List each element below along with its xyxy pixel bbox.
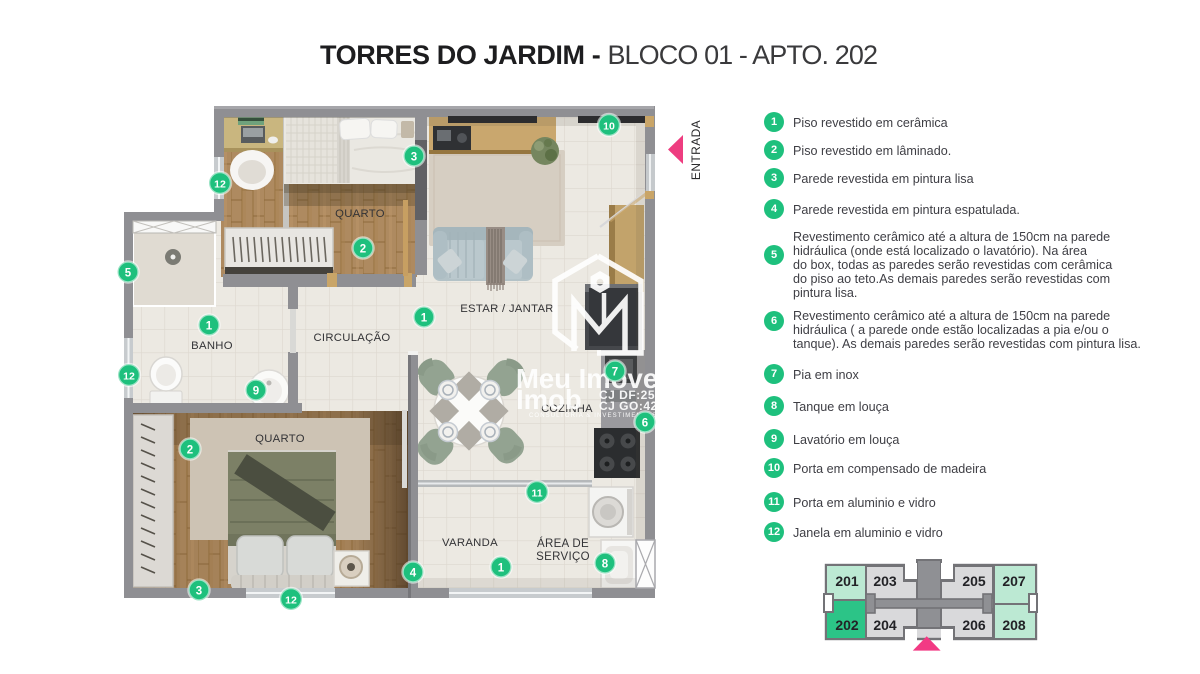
svg-text:9: 9: [253, 386, 259, 398]
svg-text:BANHO: BANHO: [191, 340, 233, 352]
svg-text:203: 203: [873, 573, 897, 589]
svg-text:Imob: Imob: [516, 384, 582, 415]
svg-text:3: 3: [196, 586, 202, 598]
svg-text:8: 8: [602, 559, 609, 571]
svg-text:3: 3: [411, 152, 417, 164]
svg-text:VARANDA: VARANDA: [442, 537, 498, 549]
svg-text:208: 208: [1002, 617, 1026, 633]
svg-text:ESTAR / JANTAR: ESTAR / JANTAR: [460, 303, 554, 315]
svg-text:CONSULTORIA & INVESTIMENTOS IM: CONSULTORIA & INVESTIMENTOS IMOBILIARIOS: [529, 413, 714, 419]
svg-text:204: 204: [873, 617, 897, 633]
svg-text:10: 10: [603, 121, 615, 133]
svg-text:4: 4: [410, 568, 417, 580]
svg-text:ENTRADA: ENTRADA: [689, 120, 703, 180]
svg-text:2: 2: [187, 445, 193, 457]
svg-text:QUARTO: QUARTO: [255, 433, 305, 445]
svg-text:1: 1: [421, 313, 428, 325]
svg-text:5: 5: [125, 268, 132, 280]
svg-text:12: 12: [285, 595, 297, 607]
svg-text:6: 6: [642, 418, 648, 430]
svg-text:CIRCULAÇÃO: CIRCULAÇÃO: [313, 331, 390, 344]
svg-text:11: 11: [531, 488, 542, 500]
svg-text:CJ GO:423: CJ GO:423: [599, 399, 665, 413]
svg-text:QUARTO: QUARTO: [335, 208, 385, 220]
svg-text:12: 12: [123, 371, 135, 383]
svg-text:12: 12: [214, 179, 226, 191]
svg-text:2: 2: [360, 244, 366, 256]
svg-text:SERVIÇO: SERVIÇO: [536, 551, 590, 563]
svg-text:206: 206: [962, 617, 986, 633]
svg-text:207: 207: [1002, 573, 1026, 589]
svg-text:7: 7: [612, 367, 618, 379]
svg-text:ÁREA DE: ÁREA DE: [537, 537, 589, 550]
svg-text:1: 1: [206, 321, 213, 333]
svg-text:1: 1: [498, 563, 505, 575]
svg-text:201: 201: [835, 573, 859, 589]
svg-text:202: 202: [835, 617, 859, 633]
svg-text:205: 205: [962, 573, 986, 589]
